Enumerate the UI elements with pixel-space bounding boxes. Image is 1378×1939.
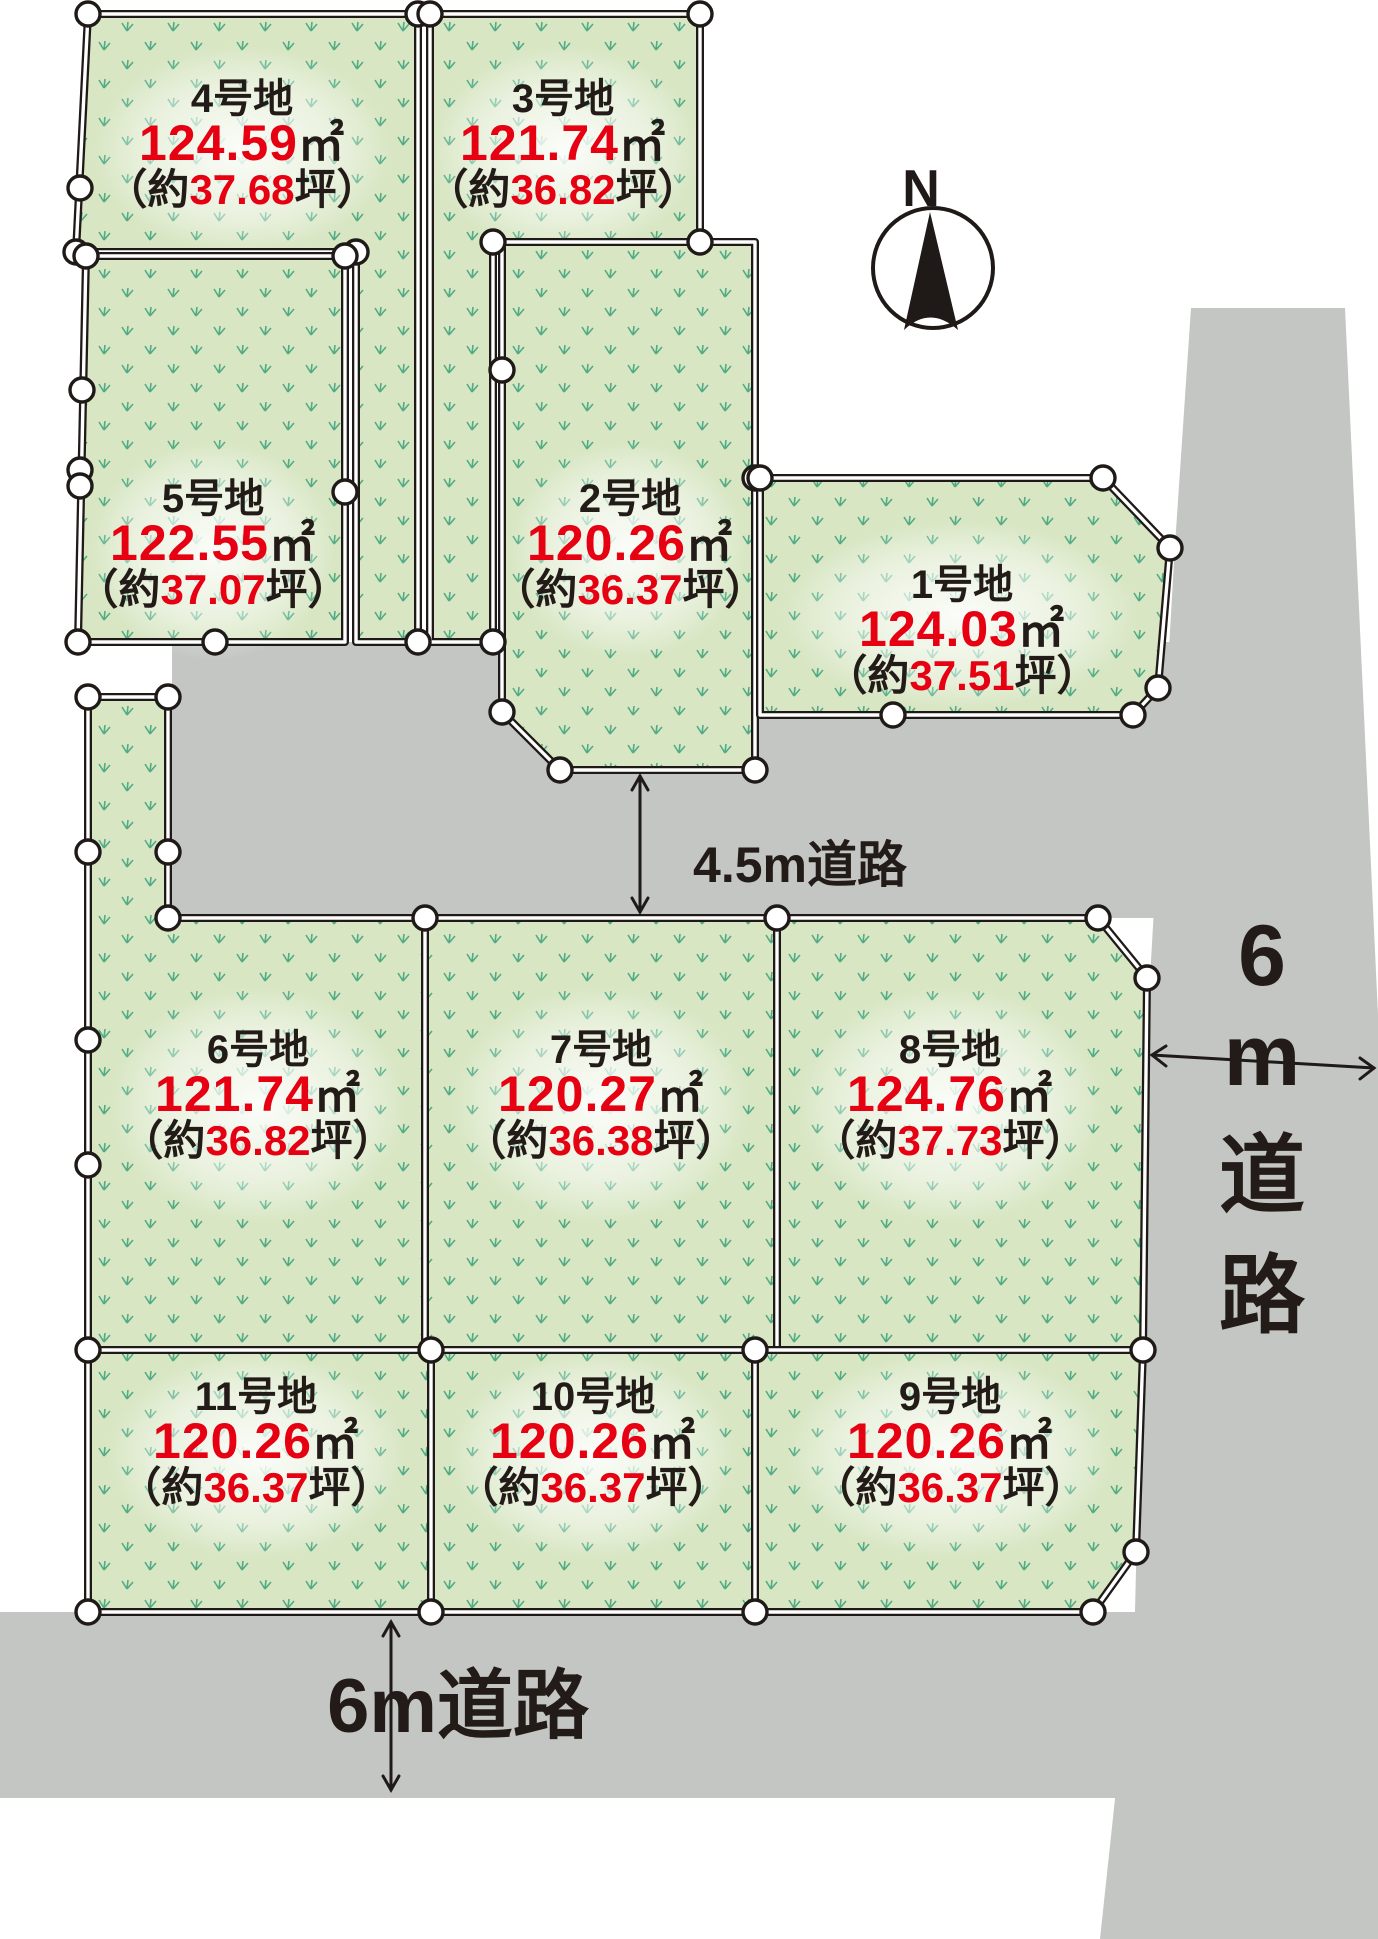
lot-7-tsubo: （約36.38坪） (464, 1117, 737, 1164)
lot-10-area: 120.26㎡ (490, 1413, 696, 1469)
road-bottom (0, 1612, 1378, 1798)
lot-7-area: 120.27㎡ (498, 1066, 704, 1122)
lot-1-area: 124.03㎡ (859, 601, 1065, 657)
lot-5-tsubo: （約37.07坪） (76, 566, 349, 613)
lot-10-tsubo: （約36.37坪） (456, 1464, 729, 1511)
lot-6-tsubo: （約36.82坪） (121, 1117, 394, 1164)
lot-8: 8号地 124.76㎡ （約37.73坪） (777, 918, 1147, 1350)
road-label-6m-bottom: 6m道路 (327, 1664, 590, 1749)
lot-11: 11号地 120.26㎡ （約36.37坪） (88, 1350, 431, 1612)
lot-3-tsubo: （約36.82坪） (426, 166, 699, 213)
site-plan: 4号地 124.59㎡ （約37.68坪） 3号地 121.74㎡ （約36.8… (0, 0, 1378, 1939)
lot-1: 1号地 124.03㎡ （約37.51坪） (760, 478, 1170, 715)
lot-9-tsubo: （約36.37坪） (813, 1464, 1086, 1511)
lot-6-area: 121.74㎡ (155, 1066, 361, 1122)
lot-4-area: 124.59㎡ (139, 115, 345, 171)
lot-11-tsubo: （約36.37坪） (119, 1464, 392, 1511)
lot-1-tsubo: （約37.51坪） (825, 652, 1098, 699)
road-label-6m-right-char-0: 6 (1238, 908, 1286, 1004)
lot-4-tsubo: （約37.68坪） (105, 166, 378, 213)
lot-9-area: 120.26㎡ (847, 1413, 1053, 1469)
lot-2-area: 120.26㎡ (527, 515, 733, 571)
lot-10: 10号地 120.26㎡ （約36.37坪） (431, 1350, 755, 1612)
lot-2: 2号地 120.26㎡ （約36.37坪） (493, 242, 766, 770)
road-label-6m-right-char-2: 道 (1219, 1128, 1305, 1224)
lot-5-area: 122.55㎡ (110, 515, 316, 571)
lot-2-tsubo: （約36.37坪） (493, 566, 766, 613)
road-label-6m-right-char-3: 路 (1219, 1248, 1306, 1344)
lot-8-area: 124.76㎡ (847, 1066, 1053, 1122)
lot-3-area: 121.74㎡ (460, 115, 666, 171)
road-label-6m-right-char-1: m (1224, 1008, 1300, 1104)
road-label-45m: 4.5m道路 (693, 837, 908, 893)
lot-11-area: 120.26㎡ (153, 1413, 359, 1469)
lot-7: 7号地 120.27㎡ （約36.38坪） (425, 918, 777, 1350)
site-plan-page: 4号地 124.59㎡ （約37.68坪） 3号地 121.74㎡ （約36.8… (0, 0, 1378, 1939)
lot-5: 5号地 122.55㎡ （約37.07坪） (76, 256, 349, 660)
lot-9: 9号地 120.26㎡ （約36.37坪） (755, 1350, 1143, 1612)
lot-8-tsubo: （約37.73坪） (813, 1117, 1086, 1164)
